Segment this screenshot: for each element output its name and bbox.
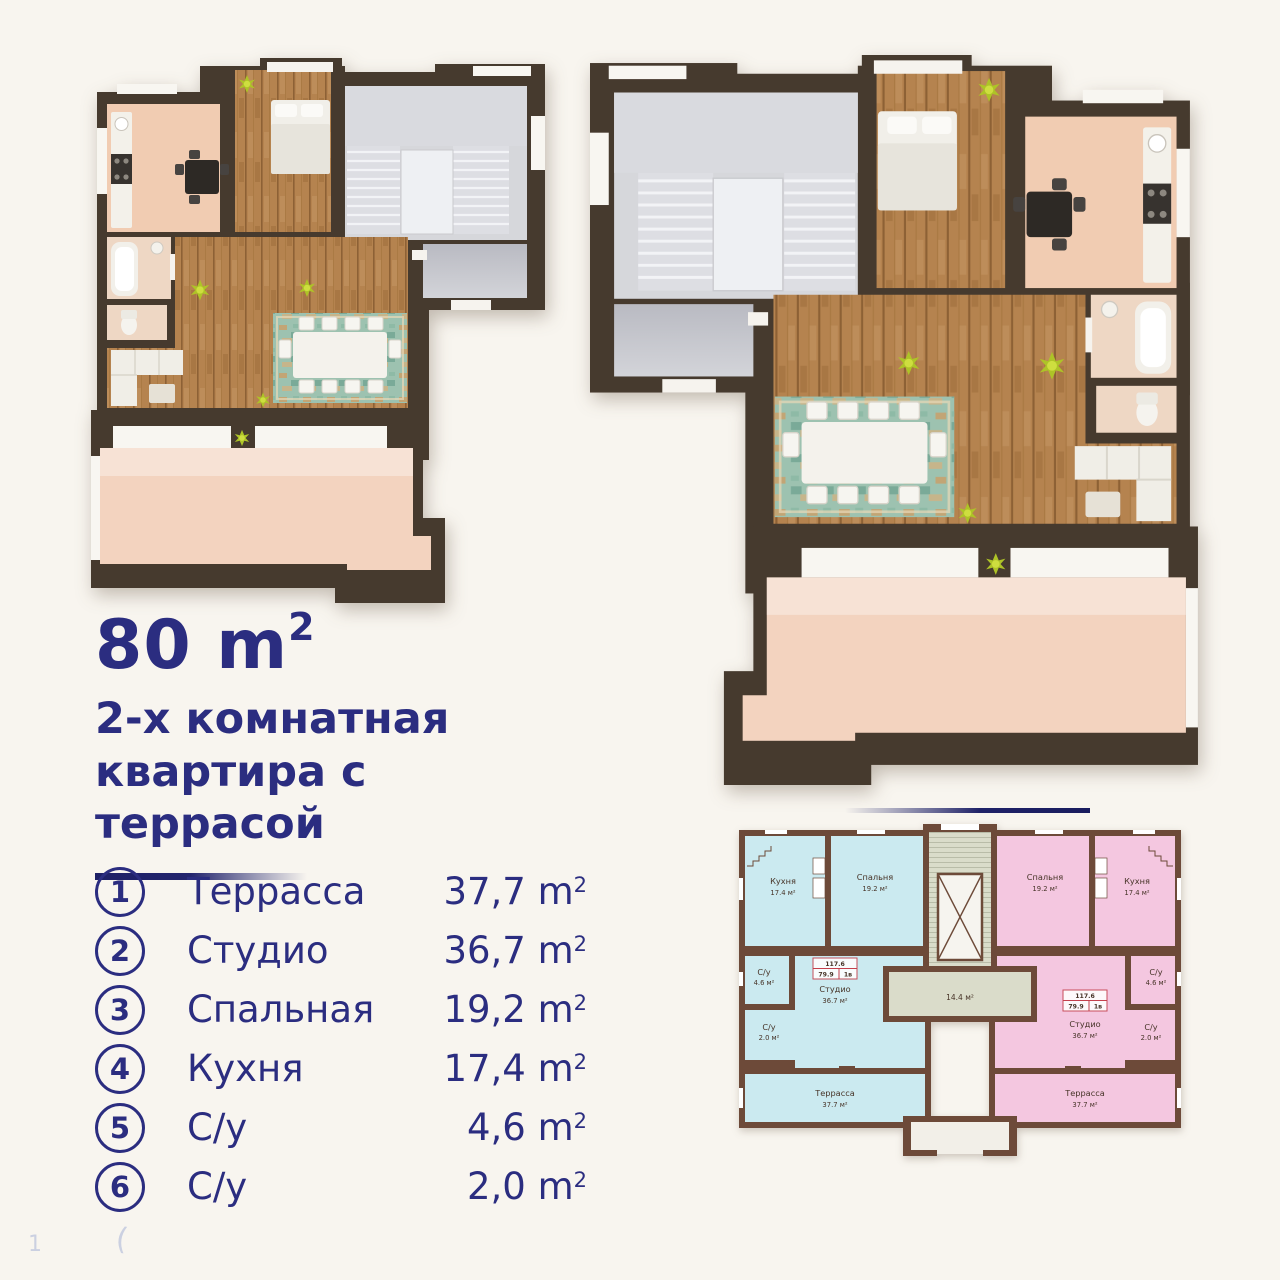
- svg-text:2.0 м²: 2.0 м²: [759, 1034, 780, 1042]
- room-label: Кухня: [770, 876, 796, 886]
- floorplan-3d-right: [590, 55, 1206, 785]
- room-label: С/у: [1149, 967, 1162, 977]
- svg-text:19.2 м²: 19.2 м²: [1032, 885, 1057, 893]
- floorplan-2d-mini: Кухня 17.4 м² Спальня 19.2 м² С/у 4.6 м²…: [735, 820, 1185, 1165]
- legend-item-studio: 2 Студио 36,7 m2: [95, 921, 587, 980]
- entrance-porch: [903, 1116, 1017, 1156]
- legend-item-su1: 5 С/у 4,6 m2: [95, 1098, 587, 1157]
- legend-item-su2: 6 С/у 2,0 m2: [95, 1157, 587, 1216]
- legend-value: 17,4 m2: [443, 1047, 587, 1090]
- scan-artifact-page-number: 1: [28, 1232, 42, 1257]
- legend-value: 37,7 m2: [443, 870, 587, 913]
- legend-item-kitchen: 4 Кухня 17,4 m2: [95, 1039, 587, 1098]
- floorplan-3d-left: [85, 58, 545, 603]
- legend-value: 36,7 m2: [443, 929, 587, 972]
- hall-area-label: 14.4 м²: [946, 993, 974, 1002]
- elevator-icon: [938, 874, 982, 960]
- room-legend: 1 Террасса 37,7 m2 2 Студио 36,7 m2 3 Сп…: [95, 862, 587, 1216]
- scan-artifact-mark: (: [114, 1221, 130, 1257]
- miniplan-gradient-bar: [845, 808, 1090, 813]
- room-label: Спальня: [857, 872, 893, 882]
- legend-number-badge: 5: [95, 1103, 145, 1153]
- legend-value: 2,0 m2: [467, 1165, 587, 1208]
- svg-text:2.0 м²: 2.0 м²: [1141, 1034, 1162, 1042]
- title-block: 80 m2 2-х комнатнаяквартира с террасой: [95, 608, 595, 880]
- svg-text:36.7 м²: 36.7 м²: [1072, 1032, 1097, 1040]
- svg-text:1в: 1в: [844, 972, 852, 979]
- svg-text:37.7 м²: 37.7 м²: [822, 1101, 847, 1109]
- room-label: С/у: [757, 967, 770, 977]
- room-label: Студио: [819, 984, 850, 994]
- svg-text:79.9: 79.9: [818, 972, 833, 979]
- svg-text:19.2 м²: 19.2 м²: [862, 885, 887, 893]
- svg-text:4.6 м²: 4.6 м²: [754, 979, 775, 987]
- apartment-badge-left: 117.6 79.9 1в: [813, 958, 857, 979]
- legend-label: С/у: [187, 1106, 247, 1149]
- room-label: Террасса: [1064, 1088, 1104, 1098]
- legend-label: Студио: [187, 929, 329, 972]
- legend-number-badge: 6: [95, 1162, 145, 1212]
- legend-label: С/у: [187, 1165, 247, 1208]
- room-label: Спальня: [1027, 872, 1063, 882]
- apartment-badge-right: 117.6 79.9 1в: [1063, 990, 1107, 1011]
- room-label: С/у: [1144, 1022, 1157, 1032]
- legend-item-bedroom: 3 Спальная 19,2 m2: [95, 980, 587, 1039]
- svg-text:79.9: 79.9: [1068, 1004, 1083, 1011]
- svg-text:36.7 м²: 36.7 м²: [822, 997, 847, 1005]
- room-label: С/у: [762, 1022, 775, 1032]
- page-title: 80 m2: [95, 608, 595, 681]
- svg-text:17.4 м²: 17.4 м²: [1124, 889, 1149, 897]
- legend-number-badge: 2: [95, 926, 145, 976]
- svg-text:117.6: 117.6: [1075, 993, 1095, 1000]
- legend-number-badge: 4: [95, 1044, 145, 1094]
- legend-number-badge: 1: [95, 867, 145, 917]
- svg-text:4.6 м²: 4.6 м²: [1146, 979, 1167, 987]
- svg-text:17.4 м²: 17.4 м²: [770, 889, 795, 897]
- legend-label: Спальная: [187, 988, 374, 1031]
- legend-label: Террасса: [187, 870, 365, 913]
- legend-item-terrace: 1 Террасса 37,7 m2: [95, 862, 587, 921]
- legend-number-badge: 3: [95, 985, 145, 1035]
- svg-text:37.7 м²: 37.7 м²: [1072, 1101, 1097, 1109]
- legend-value: 4,6 m2: [467, 1106, 587, 1149]
- room-label: Кухня: [1124, 876, 1150, 886]
- legend-value: 19,2 m2: [443, 988, 587, 1031]
- legend-label: Кухня: [187, 1047, 304, 1090]
- svg-text:117.6: 117.6: [825, 961, 845, 968]
- room-label: Студио: [1069, 1019, 1100, 1029]
- room-label: Террасса: [814, 1088, 854, 1098]
- brochure-page: 80 m2 2-х комнатнаяквартира с террасой 1…: [0, 0, 1280, 1280]
- page-subtitle: 2-х комнатнаяквартира с террасой: [95, 693, 595, 850]
- svg-text:1в: 1в: [1094, 1004, 1102, 1011]
